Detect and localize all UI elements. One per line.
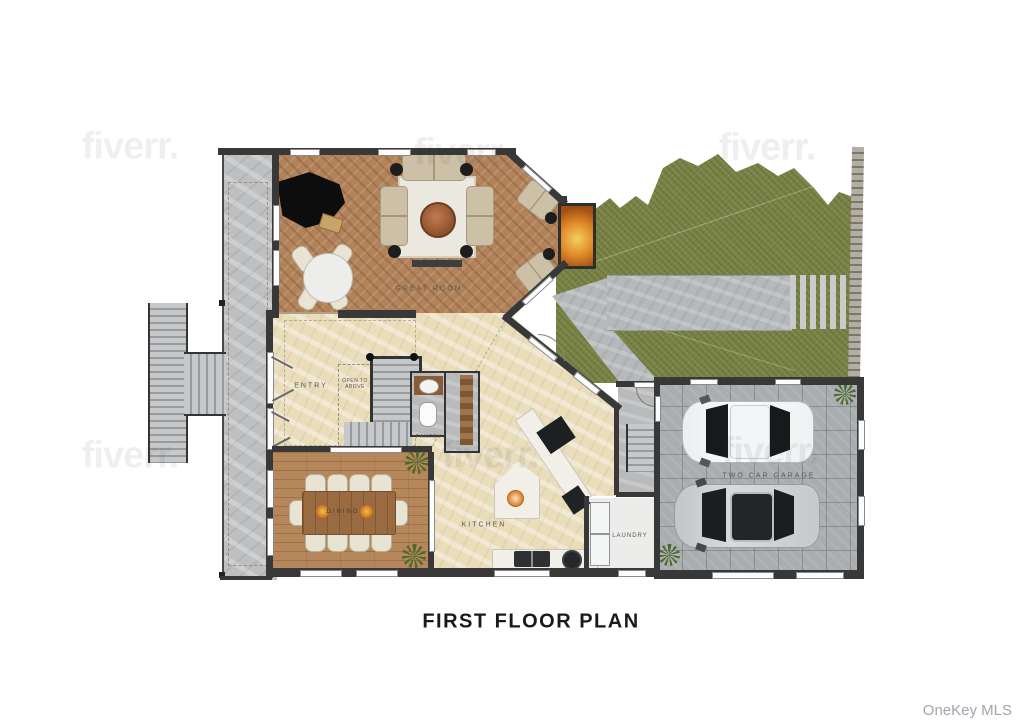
window <box>273 250 280 286</box>
porch-roof-line <box>228 182 268 566</box>
fiverr-watermark: fiverr. <box>82 126 179 169</box>
side-table <box>460 245 473 258</box>
wall-kitchen-laundry <box>584 496 589 576</box>
fiverr-watermark: fiverr. <box>719 127 816 170</box>
car-windshield <box>702 488 726 542</box>
entry-door-opening <box>267 352 274 404</box>
garage-door <box>796 572 844 579</box>
window <box>267 518 274 556</box>
open-to-above-line2: ABOVE <box>342 384 368 390</box>
dining-chair <box>371 532 392 552</box>
window <box>378 149 411 156</box>
dining-chair <box>305 532 326 552</box>
window <box>690 379 718 385</box>
newel-post <box>366 353 374 361</box>
side-table <box>543 248 555 260</box>
kitchen-sink <box>514 551 550 567</box>
floor-plan-canvas: GREAT ROOM ENTRY OPEN TO ABOVE PANTRY DI… <box>0 0 1024 723</box>
car-rear-window <box>774 489 794 541</box>
garden-steps <box>790 275 852 329</box>
side-table <box>460 163 473 176</box>
sink <box>419 379 439 394</box>
entry-door-opening <box>267 408 274 450</box>
garage-side-door <box>655 396 661 422</box>
window <box>356 570 398 577</box>
pantry-label: PANTRY <box>416 434 442 440</box>
potted-plant <box>658 544 680 566</box>
great-room-threshold <box>278 312 340 314</box>
side-table <box>545 212 557 224</box>
dining-label: DINING <box>327 509 360 515</box>
car-windshield <box>706 404 728 458</box>
cased-opening <box>429 480 435 552</box>
coffee-table <box>420 202 456 238</box>
car-roof <box>730 405 770 459</box>
mls-credit: OneKey MLS <box>923 702 1012 719</box>
newel-post <box>410 353 418 361</box>
centerpiece <box>360 505 373 518</box>
window <box>300 570 342 577</box>
dryer <box>590 534 610 566</box>
window <box>858 420 865 450</box>
dining-chair <box>327 532 348 552</box>
cased-opening <box>330 447 402 453</box>
walkway-band <box>607 275 792 331</box>
plan-title: FIRST FLOOR PLAN <box>422 611 639 634</box>
window <box>494 570 550 577</box>
window <box>467 149 496 156</box>
wall-garage-top <box>654 377 864 385</box>
loveseat <box>380 186 408 246</box>
side-table <box>390 163 403 176</box>
potted-plant <box>402 544 426 568</box>
mudroom-door-opening <box>634 382 656 388</box>
kitchen-label: KITCHEN <box>462 522 507 529</box>
car-silver <box>674 480 818 550</box>
window <box>858 496 865 526</box>
tv-console <box>412 260 462 267</box>
car-sunroof <box>730 492 774 542</box>
window <box>618 570 646 577</box>
side-table <box>388 245 401 258</box>
food-platter <box>507 490 524 507</box>
wall-mudroom-bottom <box>616 492 658 497</box>
porch-post <box>219 300 225 306</box>
car-rear-window <box>770 405 790 457</box>
wall-great-room-entry <box>338 310 416 318</box>
great-room-label: GREAT ROOM <box>395 286 462 293</box>
pot <box>562 550 582 570</box>
exterior-stairs-landing <box>184 352 226 416</box>
entry-label: ENTRY <box>294 383 328 390</box>
laundry-label: LAUNDRY <box>612 533 648 539</box>
wall-porch-bottom <box>220 576 272 580</box>
garage-door <box>712 572 774 579</box>
wall-mudroom-left <box>614 403 619 495</box>
window <box>267 470 274 508</box>
window <box>290 149 320 156</box>
toilet <box>419 402 437 427</box>
car-white <box>682 397 812 465</box>
garage-label: TWO CAR GARAGE <box>723 473 816 480</box>
loveseat <box>466 186 494 246</box>
sofa <box>402 153 466 181</box>
open-to-above-label: OPEN TO ABOVE <box>342 378 368 390</box>
dining-chair <box>349 532 370 552</box>
washer <box>590 502 610 534</box>
window <box>775 379 801 385</box>
round-table <box>303 253 353 303</box>
exterior-stairs-run <box>148 303 188 463</box>
wall-garage-right <box>857 377 864 579</box>
potted-plant <box>405 450 429 474</box>
potted-plant <box>834 383 856 405</box>
pantry-shelves <box>460 375 473 445</box>
window <box>273 205 280 241</box>
stone-wall <box>848 147 864 385</box>
